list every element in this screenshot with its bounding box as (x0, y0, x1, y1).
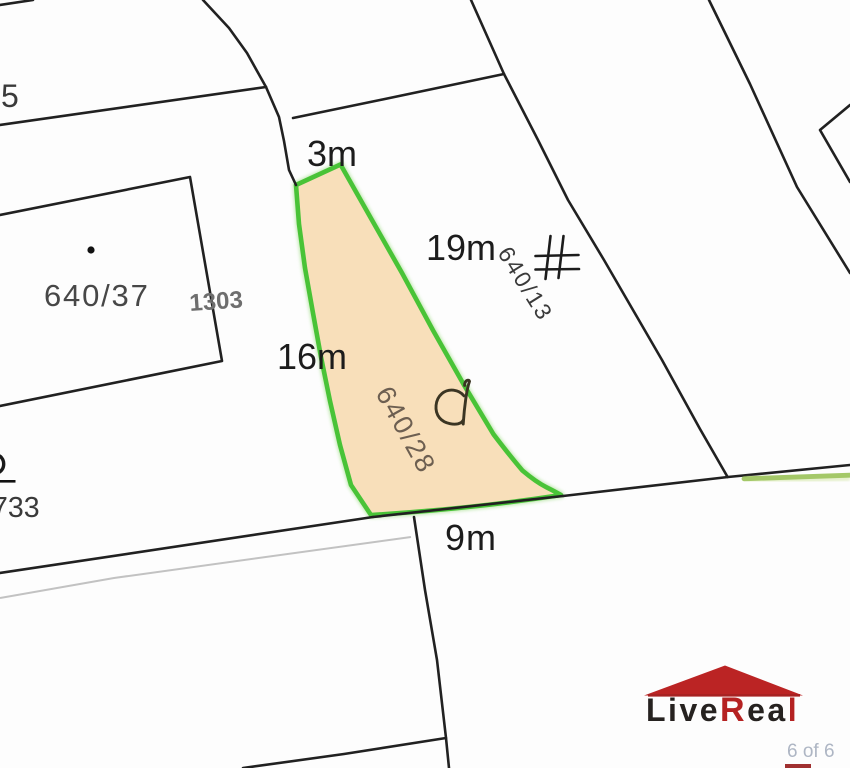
svg-text:9m: 9m (445, 517, 497, 558)
svg-text:733: 733 (0, 492, 40, 524)
svg-text:640/37: 640/37 (44, 278, 150, 313)
svg-text:16m: 16m (277, 336, 347, 377)
svg-text:6 of 6: 6 of 6 (787, 741, 835, 762)
svg-text:3m: 3m (307, 133, 357, 174)
svg-text:5: 5 (1, 78, 19, 114)
svg-text:19m: 19m (426, 227, 496, 268)
svg-text:LiveReal: LiveReal (646, 691, 799, 729)
svg-text:1303: 1303 (189, 286, 244, 317)
